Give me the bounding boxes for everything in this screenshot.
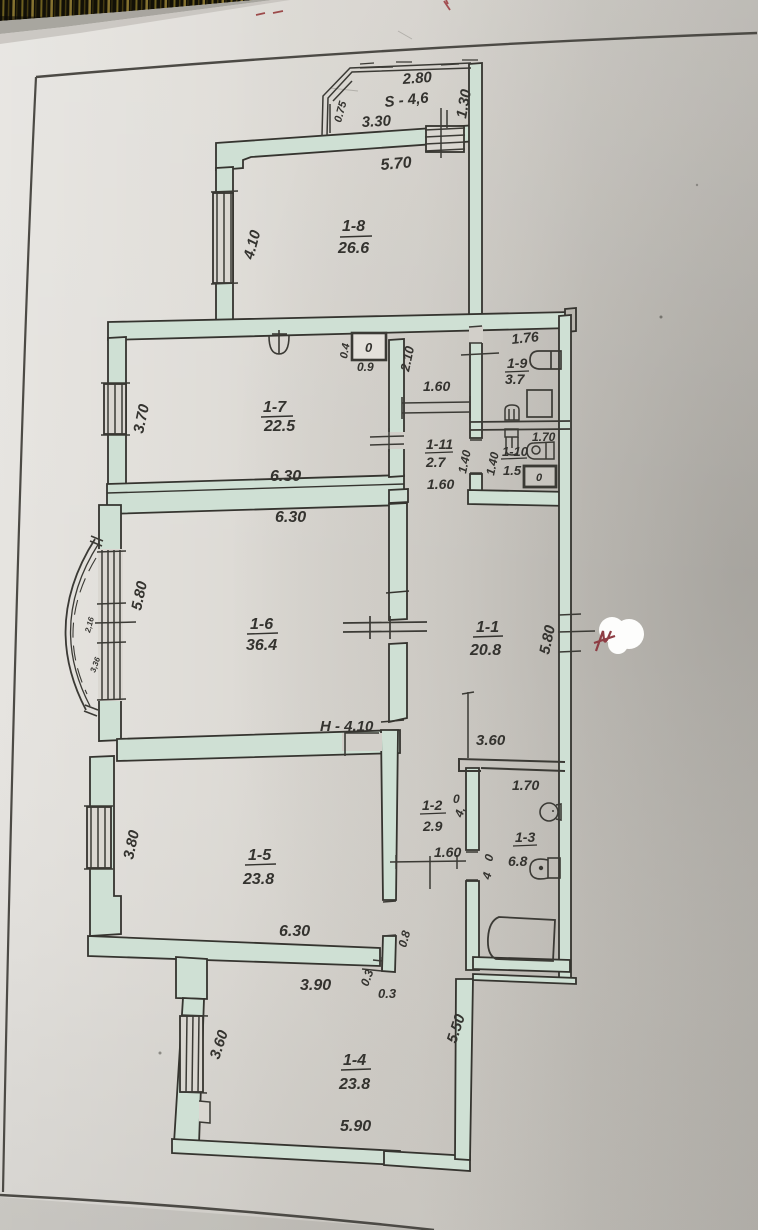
svg-text:1-1: 1-1	[476, 619, 499, 636]
svg-text:26.6: 26.6	[337, 240, 369, 257]
svg-text:1-8: 1-8	[342, 218, 365, 235]
svg-text:0: 0	[365, 340, 373, 355]
svg-text:0: 0	[536, 472, 543, 484]
svg-text:6.30: 6.30	[279, 923, 310, 940]
svg-text:1.60: 1.60	[434, 844, 461, 860]
svg-text:1-5: 1-5	[248, 847, 272, 864]
svg-text:1.5: 1.5	[503, 463, 522, 478]
svg-text:3.90: 3.90	[300, 977, 331, 994]
svg-text:2.80: 2.80	[401, 69, 433, 88]
svg-text:1.70: 1.70	[532, 430, 556, 444]
svg-text:1.70: 1.70	[512, 777, 539, 793]
svg-text:H - 4.10: H - 4.10	[320, 718, 374, 735]
svg-text:1.60: 1.60	[427, 476, 454, 492]
svg-text:22.5: 22.5	[263, 418, 296, 435]
svg-text:20.8: 20.8	[469, 642, 501, 659]
svg-text:1-2: 1-2	[422, 797, 442, 813]
svg-text:2.9: 2.9	[422, 818, 443, 834]
svg-text:1-7: 1-7	[263, 399, 287, 416]
svg-text:1-10: 1-10	[502, 444, 529, 459]
svg-text:1-3: 1-3	[515, 829, 535, 845]
svg-text:23.8: 23.8	[338, 1076, 370, 1093]
svg-text:3.60: 3.60	[476, 732, 506, 749]
svg-text:5.70: 5.70	[380, 154, 413, 174]
svg-text:1-11: 1-11	[426, 436, 453, 452]
svg-text:0.9: 0.9	[357, 360, 374, 374]
svg-text:0.3: 0.3	[378, 986, 397, 1001]
svg-text:2.7: 2.7	[425, 454, 447, 470]
svg-text:1-4: 1-4	[343, 1052, 366, 1069]
svg-text:23.8: 23.8	[242, 871, 274, 888]
svg-text:5.90: 5.90	[340, 1118, 371, 1135]
svg-text:0: 0	[453, 792, 460, 806]
svg-text:6.8: 6.8	[508, 853, 528, 869]
svg-text:1-6: 1-6	[250, 616, 273, 633]
svg-text:1.60: 1.60	[423, 378, 450, 394]
svg-text:1.76: 1.76	[511, 328, 540, 347]
svg-text:1-9: 1-9	[507, 355, 527, 371]
svg-text:3.7: 3.7	[505, 371, 526, 387]
svg-text:6.30: 6.30	[275, 509, 306, 526]
svg-text:6.30: 6.30	[270, 468, 301, 485]
svg-text:36.4: 36.4	[246, 637, 277, 654]
svg-text:3.30: 3.30	[361, 112, 392, 131]
